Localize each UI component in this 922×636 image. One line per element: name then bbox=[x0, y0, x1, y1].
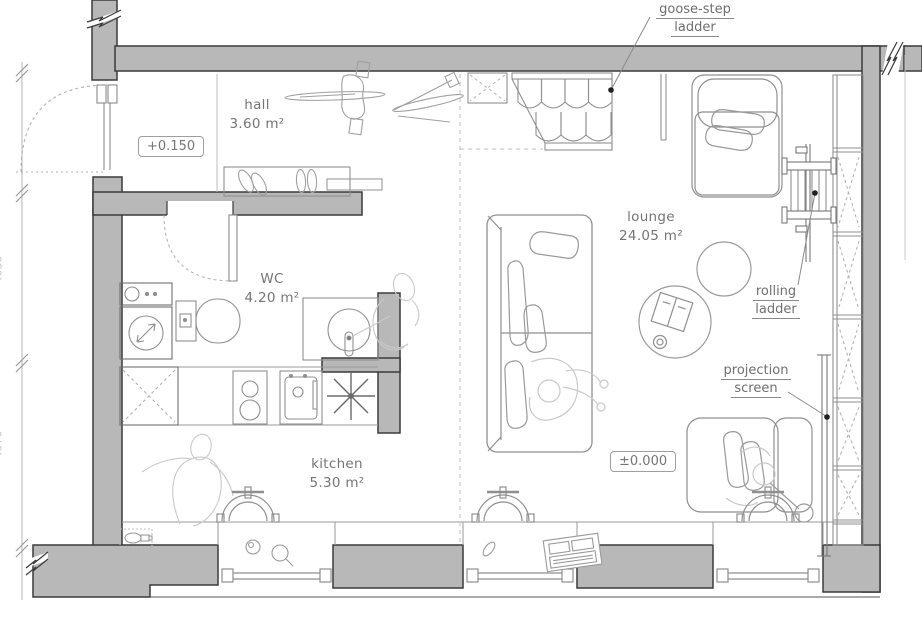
leader-dot bbox=[608, 87, 614, 93]
bed-bottom bbox=[687, 418, 813, 522]
sofa bbox=[487, 215, 592, 452]
room-name: hall bbox=[212, 96, 302, 115]
bed-top bbox=[692, 75, 782, 197]
shelf-cross-braces bbox=[838, 157, 859, 515]
room-area: 24.05 m² bbox=[605, 227, 697, 246]
room-label-lounge: lounge 24.05 m² bbox=[605, 208, 697, 246]
magnifier-object bbox=[272, 545, 288, 561]
fridge-box bbox=[120, 367, 178, 425]
dimension-value: 4030 bbox=[0, 248, 5, 292]
projection-screen bbox=[817, 355, 831, 556]
entry-column-wall bbox=[92, 0, 117, 80]
room-name: WC bbox=[229, 270, 315, 289]
room-area: 3.60 m² bbox=[212, 115, 302, 134]
washing-machine bbox=[120, 307, 172, 359]
stove bbox=[233, 371, 267, 424]
callout-goose-step-ladder: goose-step ladder bbox=[640, 1, 750, 37]
wardrobe-edge bbox=[661, 74, 666, 140]
hall-shelf bbox=[327, 179, 382, 190]
wc-door bbox=[164, 215, 237, 281]
room-label-kitchen: kitchen 5.30 m² bbox=[294, 455, 380, 493]
bicycle bbox=[285, 61, 464, 135]
shoe bbox=[236, 168, 257, 194]
room-area: 4.20 m² bbox=[229, 289, 315, 308]
floor-plan: hall 3.60 m² WC 4.20 m² kitchen 5.30 m² … bbox=[0, 0, 922, 636]
room-name: lounge bbox=[605, 208, 697, 227]
bottom-left-wall bbox=[33, 545, 218, 597]
wc-door-swing-arc bbox=[164, 215, 233, 281]
left-wall bbox=[93, 177, 122, 547]
radiator bbox=[737, 487, 799, 522]
radiator bbox=[217, 487, 279, 522]
small-object bbox=[481, 540, 497, 558]
entry-door-swing-arc bbox=[21, 85, 108, 172]
leader-dot bbox=[812, 190, 818, 196]
wc-door-opening bbox=[167, 201, 233, 216]
elevation-marker-entry: +0.150 bbox=[138, 136, 204, 157]
star-symbol bbox=[327, 372, 375, 420]
shoe bbox=[307, 169, 318, 193]
leader-dot bbox=[824, 414, 830, 420]
goose-step-ladder bbox=[512, 73, 612, 150]
kitchen-sink bbox=[280, 371, 322, 424]
shoe bbox=[296, 169, 307, 193]
room-area: 5.30 m² bbox=[294, 474, 380, 493]
callout-rolling-ladder: rolling ladder bbox=[734, 283, 818, 319]
rolling-ladder bbox=[782, 144, 836, 262]
room-name: kitchen bbox=[294, 455, 380, 474]
room-label-hall: hall 3.60 m² bbox=[212, 96, 302, 134]
bottom-right-wall bbox=[823, 545, 880, 592]
round-rug bbox=[639, 286, 711, 358]
top-wall bbox=[115, 46, 905, 71]
room-label-wc: WC 4.20 m² bbox=[229, 270, 315, 308]
storage-box bbox=[468, 73, 507, 103]
entry-door bbox=[16, 85, 117, 172]
person-cooking bbox=[142, 432, 233, 526]
person-on-bed bbox=[726, 447, 775, 505]
windows bbox=[222, 569, 819, 582]
dimension-value: 4970 bbox=[0, 423, 5, 467]
open-book bbox=[651, 292, 693, 331]
right-wall bbox=[862, 46, 880, 592]
window-zone bbox=[122, 522, 880, 597]
callout-projection-screen: projection screen bbox=[702, 362, 810, 398]
bottom-pier-1 bbox=[333, 545, 463, 588]
cup bbox=[654, 336, 667, 349]
shelving-unit bbox=[833, 75, 863, 545]
person-on-sofa bbox=[529, 358, 608, 420]
radiator bbox=[472, 487, 534, 522]
elevation-marker-main: ±0.000 bbox=[610, 451, 676, 472]
